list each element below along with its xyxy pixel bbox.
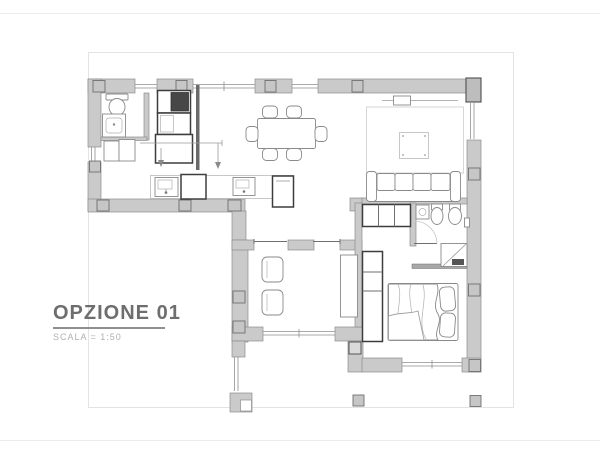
- entry-wardrobe: [156, 85, 200, 170]
- dining-set: [246, 106, 327, 161]
- corner-pillar: [466, 78, 481, 102]
- window: [292, 85, 318, 89]
- bathroom-1: [103, 94, 136, 161]
- rug: [367, 107, 464, 173]
- entry-arrowhead: [215, 162, 221, 169]
- sink-faucet: [113, 123, 115, 125]
- pillar: [228, 200, 241, 211]
- wall-top-4: [318, 79, 467, 93]
- window: [402, 360, 462, 369]
- wall-north-bottom-2: [288, 240, 314, 250]
- door-leaf-bedroom: [313, 239, 340, 244]
- dining-chair: [315, 127, 327, 142]
- living-room: [367, 96, 464, 202]
- slide-page: OPZIONE 01 SCALA = 1:50: [0, 0, 600, 460]
- window: [471, 103, 475, 139]
- pillar: [352, 81, 363, 93]
- valve: [465, 218, 470, 227]
- sofa-cushion: [395, 174, 413, 191]
- pillar: [179, 200, 191, 211]
- partition-panel: [196, 85, 200, 170]
- door-leaf-study: [254, 239, 287, 244]
- window: [135, 85, 157, 89]
- table-dot: [402, 154, 404, 156]
- pillar: [97, 200, 109, 211]
- floor-plan: [0, 0, 600, 460]
- desk: [341, 255, 358, 317]
- throw-blanket: [389, 311, 425, 340]
- closet-row: [363, 205, 411, 227]
- terrace-pillar: [470, 396, 481, 407]
- window: [193, 82, 255, 92]
- sofa-cushion: [431, 174, 450, 191]
- bidet-icon: [431, 208, 443, 225]
- page-title: OPZIONE 01: [53, 302, 253, 324]
- wall-hall-west: [232, 211, 246, 242]
- cooktop-dot: [243, 190, 246, 193]
- oven: [181, 175, 206, 200]
- study-room: [262, 255, 358, 317]
- wall-bath1-east: [144, 93, 149, 140]
- sofa-cushion: [413, 174, 431, 191]
- wall-study-south-2: [335, 327, 363, 341]
- wardrobe-column: [363, 252, 383, 342]
- table-dot: [424, 135, 426, 137]
- bathroom-2: [416, 204, 470, 267]
- shower-drain: [452, 259, 464, 265]
- pillar: [265, 81, 276, 93]
- wall-west-strip: [232, 341, 245, 357]
- wardrobe-unit: [158, 113, 191, 135]
- wardrobe-dark-block: [171, 93, 189, 112]
- wall-north-bottom-1: [232, 240, 254, 250]
- drawing-frame: [89, 53, 514, 408]
- pillar: [469, 284, 481, 296]
- sofa-arm: [451, 172, 461, 202]
- window: [92, 147, 96, 162]
- door-swing-bath2: [414, 221, 437, 244]
- coffee-table: [400, 133, 429, 159]
- tv-icon: [394, 96, 411, 105]
- laundry-unit: [104, 141, 119, 161]
- french-window: [263, 329, 335, 338]
- dining-chair: [287, 106, 302, 118]
- sofa-arm: [367, 172, 377, 202]
- table-dot: [424, 154, 426, 156]
- closet: [363, 205, 411, 227]
- wall-bedroom-south-1: [362, 358, 402, 372]
- sofa-cushion: [377, 174, 395, 191]
- terrace-pillar: [353, 395, 364, 406]
- dining-chair: [246, 127, 258, 142]
- pillar: [349, 342, 361, 354]
- toilet-icon: [449, 208, 462, 225]
- pillar: [93, 81, 105, 93]
- title-block: OPZIONE 01 SCALA = 1:50: [53, 302, 253, 342]
- dining-chair: [287, 149, 302, 161]
- table-dot: [402, 135, 404, 137]
- pillar: [469, 168, 481, 180]
- pillow: [439, 313, 456, 338]
- chair: [262, 257, 283, 282]
- title-underline: [53, 327, 165, 329]
- washbasin: [416, 205, 429, 219]
- scale-label: SCALA = 1:50: [53, 332, 253, 342]
- pillow: [439, 286, 456, 311]
- chair: [262, 290, 283, 315]
- laundry-unit: [119, 140, 135, 162]
- dining-chair: [263, 106, 278, 118]
- kitchen-faucet-dot: [165, 191, 168, 194]
- window: [235, 357, 239, 391]
- sofa-back: [367, 190, 461, 202]
- pillar: [469, 360, 481, 372]
- dining-table: [258, 119, 316, 149]
- toilet-icon: [109, 99, 125, 116]
- pillar: [90, 161, 101, 172]
- terrace-foot-notch: [241, 400, 252, 411]
- dining-chair: [263, 149, 278, 161]
- wall-south-topsection: [88, 199, 245, 212]
